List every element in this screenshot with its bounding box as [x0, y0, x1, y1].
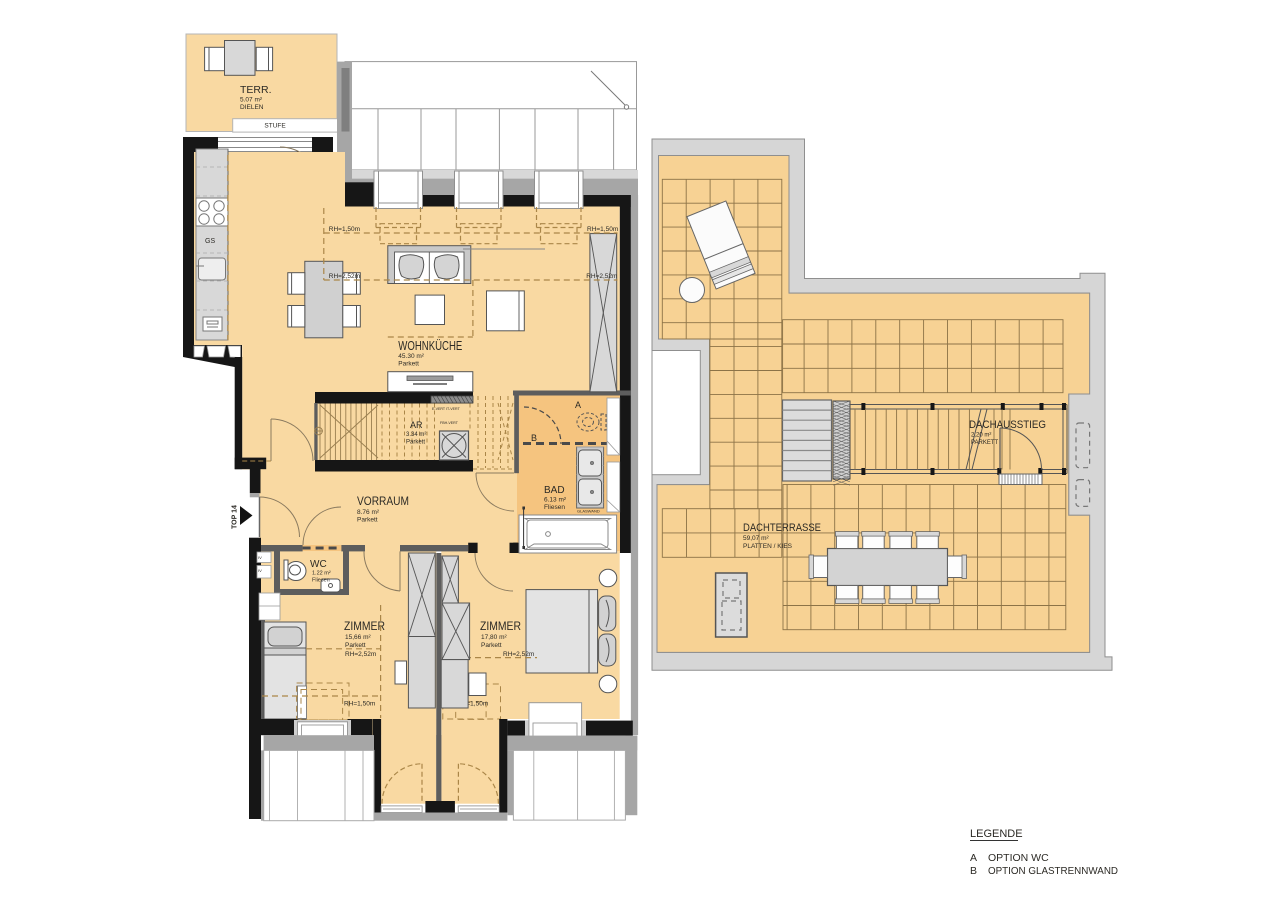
svg-text:RH=1,50m: RH=1,50m	[329, 226, 360, 233]
svg-text:OPTION WC: OPTION WC	[988, 852, 1049, 864]
svg-text:6.13 m²: 6.13 m²	[544, 497, 567, 504]
svg-text:45.30 m²: 45.30 m²	[398, 353, 424, 360]
svg-text:RH=2,52m: RH=2,52m	[586, 273, 617, 280]
svg-text:Parkett: Parkett	[357, 517, 378, 524]
svg-text:RH=1,50m: RH=1,50m	[587, 226, 618, 233]
svg-text:LEGENDE: LEGENDE	[970, 828, 1023, 840]
svg-text:GS: GS	[205, 238, 215, 245]
svg-text:GLASWAND: GLASWAND	[577, 509, 600, 514]
svg-text:B: B	[531, 433, 537, 443]
svg-text:RH=2,52m: RH=2,52m	[345, 651, 376, 658]
svg-text:1.22 m²: 1.22 m²	[312, 571, 331, 577]
svg-text:IV: IV	[258, 568, 262, 573]
svg-text:RH=1,50m: RH=1,50m	[344, 701, 375, 708]
svg-text:A: A	[970, 852, 977, 864]
svg-text:RH=2,52m: RH=2,52m	[503, 651, 534, 658]
svg-text:B: B	[970, 865, 977, 877]
svg-text:AR: AR	[410, 420, 423, 430]
svg-text:17,80 m²: 17,80 m²	[481, 634, 507, 641]
svg-text:Fliesen: Fliesen	[544, 504, 565, 511]
svg-text:Parkett: Parkett	[481, 642, 502, 649]
svg-text:WC: WC	[310, 559, 327, 570]
svg-text:VORRAUM: VORRAUM	[357, 494, 409, 508]
svg-text:TERR.: TERR.	[240, 84, 272, 96]
svg-text:Parkett: Parkett	[406, 440, 425, 446]
svg-text:DACHTERRASSE: DACHTERRASSE	[743, 522, 821, 534]
svg-text:DIELEN: DIELEN	[240, 104, 264, 111]
svg-text:2,20 m²: 2,20 m²	[971, 433, 991, 439]
svg-text:BAD: BAD	[544, 485, 565, 496]
svg-text:3.34 m²: 3.34 m²	[406, 432, 426, 438]
svg-text:8.76 m²: 8.76 m²	[357, 509, 380, 516]
svg-text:PLATTEN / KIES: PLATTEN / KIES	[743, 543, 793, 550]
svg-text:ZIMMER: ZIMMER	[480, 621, 521, 633]
svg-text:PARKETT: PARKETT	[971, 440, 999, 446]
svg-text:Fliesen: Fliesen	[312, 578, 330, 584]
svg-text:FBH-VERT: FBH-VERT	[440, 421, 459, 425]
svg-text:ZIMMER: ZIMMER	[344, 621, 385, 633]
svg-text:TOP 14: TOP 14	[232, 505, 239, 529]
svg-text:A: A	[575, 400, 581, 410]
svg-text:WOHNKÜCHE: WOHNKÜCHE	[398, 339, 462, 353]
svg-text:Parkett: Parkett	[398, 361, 419, 368]
svg-text:STUFE: STUFE	[264, 123, 286, 130]
svg-text:5.07 m²: 5.07 m²	[240, 97, 263, 104]
svg-text:DACHAUSSTIEG: DACHAUSSTIEG	[969, 419, 1046, 431]
svg-text:IV: IV	[258, 555, 262, 560]
svg-text:59,07 m²: 59,07 m²	[743, 535, 769, 542]
svg-text:15,66 m²: 15,66 m²	[345, 634, 371, 641]
svg-text:RH=2,52m: RH=2,52m	[329, 273, 360, 280]
svg-text:OPTION GLASTRENNWAND: OPTION GLASTRENNWAND	[988, 865, 1118, 877]
svg-text:E-VERT IT-VERT: E-VERT IT-VERT	[432, 407, 461, 411]
svg-text:Parkett: Parkett	[345, 642, 366, 649]
